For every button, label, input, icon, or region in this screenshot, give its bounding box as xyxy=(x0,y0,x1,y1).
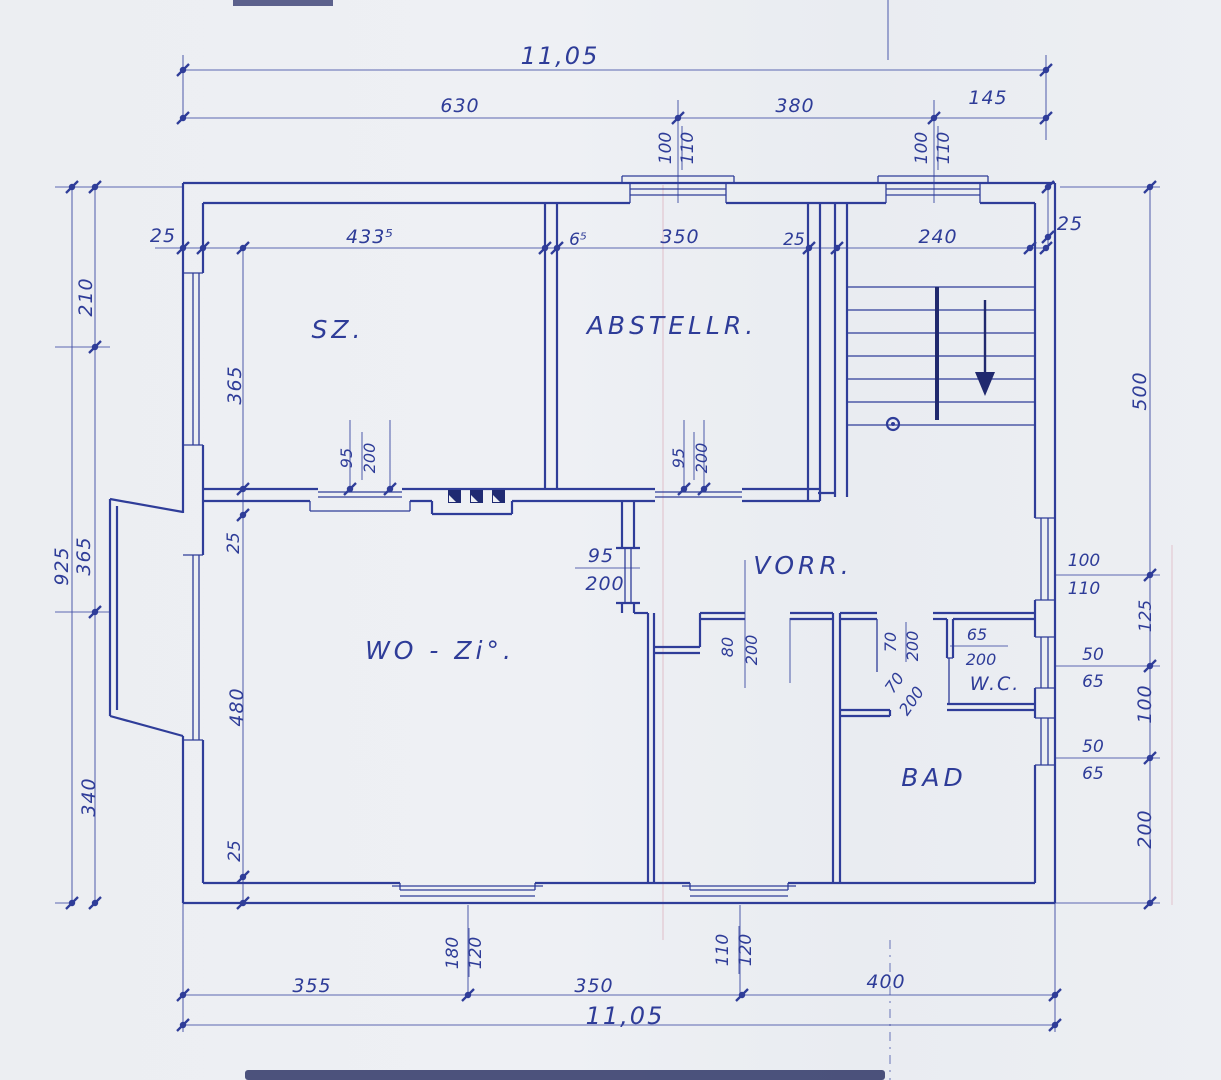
dimension-lines xyxy=(55,0,1160,1080)
dim-window-top2-height: 110 xyxy=(934,132,954,164)
room-label-vorr: VORR. xyxy=(753,551,852,580)
room-label-abstellr: ABSTELLR. xyxy=(585,311,757,340)
room-label-wozi: WO - Zi°. xyxy=(365,636,515,665)
dim-433-5: 433⁵ xyxy=(346,226,394,248)
dim-925: 925 xyxy=(51,546,73,585)
dim-window-bottom1-height: 120 xyxy=(466,937,486,969)
dim-145: 145 xyxy=(968,87,1007,109)
dim-door-abstellr-width: 95 xyxy=(669,448,688,468)
dim-210: 210 xyxy=(75,277,97,316)
chimney xyxy=(448,490,505,503)
dim-400: 400 xyxy=(866,971,905,993)
dim-wall-25-topleft: 25 xyxy=(150,225,176,247)
dim-window-right2-height: 65 xyxy=(1082,672,1104,692)
dim-25-mid: 25 xyxy=(783,230,805,250)
dim-25-inner-top: 25 xyxy=(224,532,244,554)
dim-100-right: 100 xyxy=(1134,684,1156,723)
dim-window-bottom2-height: 120 xyxy=(736,934,756,966)
dim-window-right1-width: 100 xyxy=(1068,551,1100,571)
dim-door-vorr-height: 200 xyxy=(585,573,624,595)
dim-365-left: 365 xyxy=(73,536,95,575)
scan-smudge-top xyxy=(233,0,333,6)
dim-125: 125 xyxy=(1136,600,1156,632)
labels: SZ. ABSTELLR. VORR. WO - Zi°. BAD W.C. 1… xyxy=(51,42,1156,1030)
dim-380: 380 xyxy=(775,95,814,117)
dim-240: 240 xyxy=(918,226,957,248)
floor-plan: SZ. ABSTELLR. VORR. WO - Zi°. BAD W.C. 1… xyxy=(0,0,1221,1080)
dim-6-5: 6⁵ xyxy=(569,230,587,250)
dim-window-top1-height: 110 xyxy=(678,132,698,164)
dim-wc65-width: 65 xyxy=(967,625,987,644)
dim-window-top1-width: 100 xyxy=(656,132,676,164)
dim-door-sz-width: 95 xyxy=(337,448,356,468)
walls xyxy=(110,183,1055,903)
dim-door-bad-width: 70 xyxy=(881,632,900,652)
scan-artifacts xyxy=(233,0,1172,1080)
dim-350-top: 350 xyxy=(660,226,699,248)
dim-door-middle-height: 200 xyxy=(742,635,761,666)
scanned-floor-plan-sheet: SZ. ABSTELLR. VORR. WO - Zi°. BAD W.C. 1… xyxy=(0,0,1221,1080)
dim-355: 355 xyxy=(292,975,331,997)
dim-door-wc-width: 70 xyxy=(881,669,908,697)
room-label-bad: BAD xyxy=(901,763,967,792)
dim-door-vorr-width: 95 xyxy=(588,545,614,567)
dim-door-abstellr-height: 200 xyxy=(692,443,711,474)
dim-200-right: 200 xyxy=(1134,809,1156,848)
stair-post-center xyxy=(891,422,895,426)
dim-25-inner-bottom: 25 xyxy=(225,840,245,862)
dim-window-bottom1-width: 180 xyxy=(443,937,463,969)
stairs xyxy=(887,287,995,430)
stairs-arrow-head-icon xyxy=(975,372,995,396)
room-label-wc: W.C. xyxy=(970,673,1021,695)
dim-window-right2-width: 50 xyxy=(1082,645,1104,665)
dim-340: 340 xyxy=(78,777,100,816)
dim-window-right3-width: 50 xyxy=(1082,737,1104,757)
dim-window-right3-height: 65 xyxy=(1082,764,1104,784)
dim-window-right1-height: 110 xyxy=(1068,579,1100,599)
dim-door-sz-height: 200 xyxy=(360,443,379,474)
dim-630: 630 xyxy=(440,95,479,117)
dim-500: 500 xyxy=(1129,371,1151,410)
room-label-sz: SZ. xyxy=(312,315,365,344)
dim-480: 480 xyxy=(226,687,248,726)
dim-door-bad-height: 200 xyxy=(903,631,922,662)
dim-overall-bottom: 11,05 xyxy=(586,1002,665,1030)
dim-350-bottom: 350 xyxy=(574,975,613,997)
scan-smudge-bottom xyxy=(245,1070,885,1080)
dim-door-middle-width: 80 xyxy=(718,637,737,657)
dim-365-inner: 365 xyxy=(224,365,246,404)
dim-wc65-height: 200 xyxy=(966,650,997,669)
dim-overall-top: 11,05 xyxy=(521,42,600,70)
dim-25-topright: 25 xyxy=(1057,213,1083,235)
dim-window-top2-width: 100 xyxy=(912,132,932,164)
dim-window-bottom2-width: 110 xyxy=(713,934,733,966)
